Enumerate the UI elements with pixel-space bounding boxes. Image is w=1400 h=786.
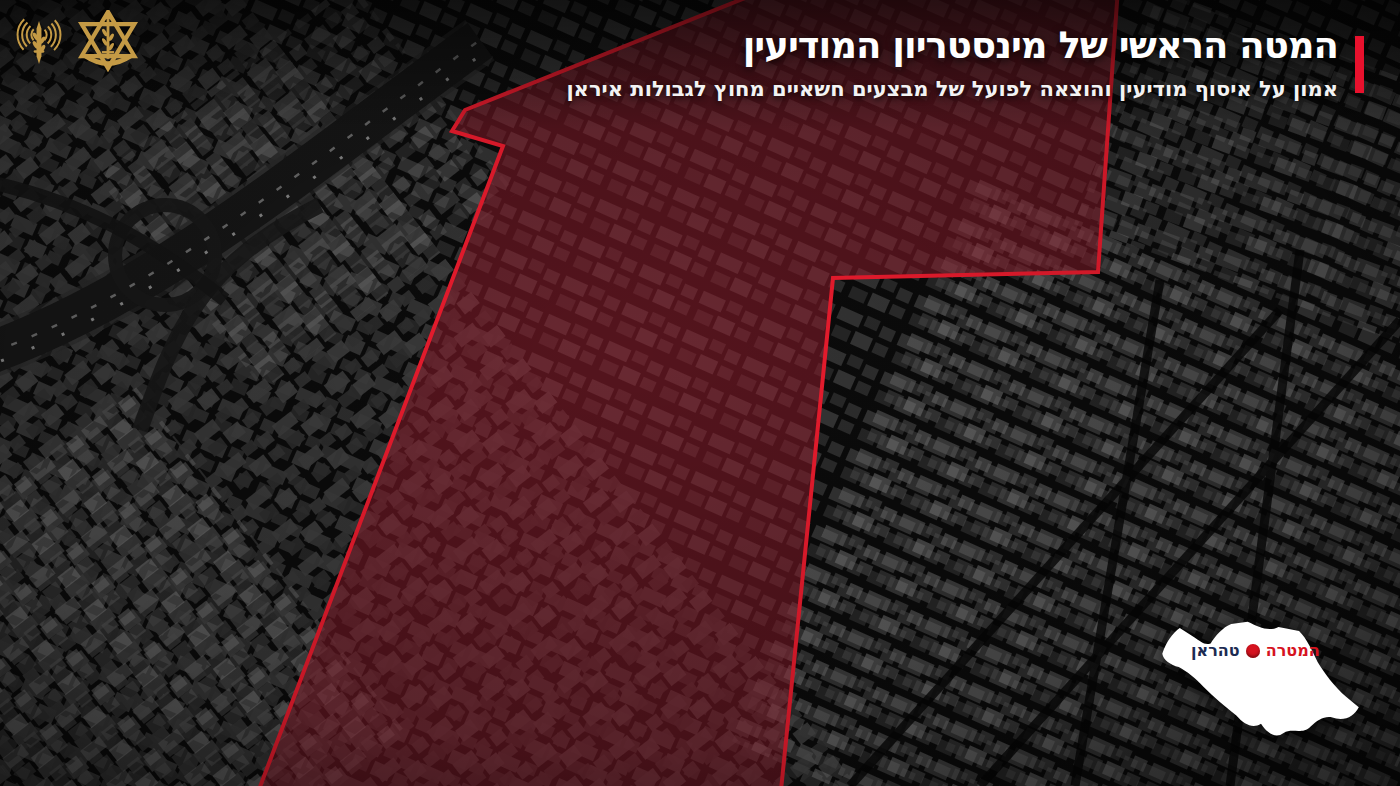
target-marker-dot [1246,644,1260,658]
idf-spokesperson-emblem-icon [16,10,62,72]
title-accent-bar [1355,36,1364,93]
iran-silhouette [1162,622,1358,736]
map-label-row: המטרה טהראן [1191,641,1320,660]
iran-locator-map [1152,610,1368,754]
logo-row [16,10,141,72]
idf-emblem-icon [75,10,141,72]
page-title: המטה הראשי של מינסטריון המודיעין [743,24,1338,67]
city-label: טהראן [1191,641,1240,660]
target-label: המטרה [1266,641,1320,660]
page-subtitle: אמון על איסוף מודיעין והוצאה לפועל של מב… [566,77,1338,101]
infographic-stage: המטה הראשי של מינסטריון המודיעין אמון על… [0,0,1400,786]
